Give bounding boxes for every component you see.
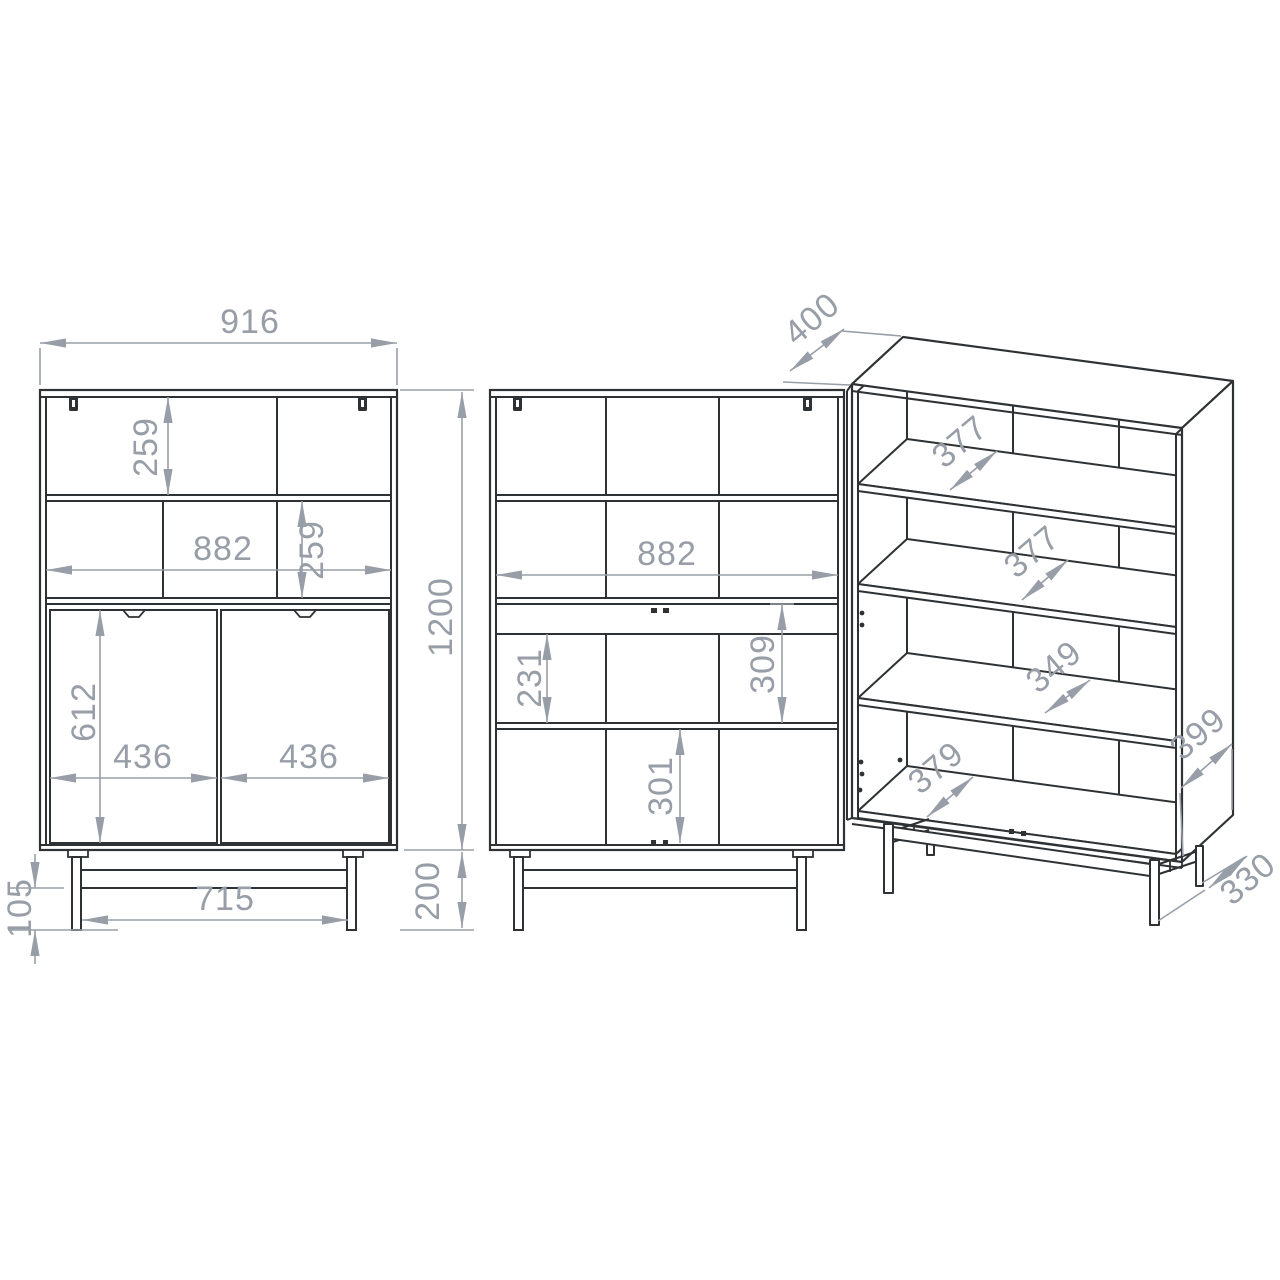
shelf-pin-hole-icon bbox=[860, 623, 865, 628]
dimension-label: 436 bbox=[113, 738, 173, 776]
leg-mount-plate bbox=[793, 850, 813, 857]
right-door bbox=[221, 610, 389, 843]
dimension-label: 259 bbox=[127, 417, 165, 477]
leg-mount-plate bbox=[68, 850, 88, 857]
technical-drawing-page: 9162598822596124364361057151200200882231… bbox=[0, 0, 1280, 1280]
dimension-label: 882 bbox=[637, 535, 697, 573]
dimension-label: 436 bbox=[279, 738, 339, 776]
metal-leg-back-right bbox=[1196, 846, 1203, 886]
fitting-mark bbox=[651, 840, 656, 844]
metal-leg-front-left bbox=[884, 824, 893, 893]
metal-leg bbox=[347, 857, 356, 930]
hinge-slot bbox=[516, 400, 519, 407]
metal-leg bbox=[72, 857, 81, 930]
leg-mount-plate bbox=[343, 850, 363, 857]
fitting-mark bbox=[651, 608, 657, 613]
hinge-slot bbox=[72, 400, 75, 407]
hinge-bracket-icon bbox=[513, 397, 522, 411]
dimension-label: 612 bbox=[65, 682, 103, 742]
dimension-label: 231 bbox=[511, 648, 549, 708]
shelf-pin-hole-icon bbox=[898, 758, 903, 763]
shelf-pin-hole-icon bbox=[858, 788, 863, 793]
metal-leg-front-right bbox=[1150, 860, 1159, 925]
dimension-label: 105 bbox=[1, 878, 39, 938]
dimension-label: 715 bbox=[195, 880, 255, 918]
leg-mount-plate bbox=[510, 850, 530, 857]
dimension-label: 309 bbox=[744, 634, 782, 694]
hinge-slot bbox=[806, 400, 809, 407]
shelf-pin-hole-icon bbox=[860, 611, 865, 616]
metal-leg bbox=[514, 857, 523, 930]
fitting-mark bbox=[1009, 829, 1014, 834]
hinge-bracket-icon bbox=[69, 397, 78, 411]
dimension-label: 882 bbox=[193, 530, 253, 568]
shelf-pin-hole-icon bbox=[860, 772, 865, 777]
hinge-bracket-icon bbox=[358, 397, 367, 411]
drawing-canvas: 9162598822596124364361057151200200882231… bbox=[0, 0, 1280, 1280]
fitting-mark bbox=[1021, 831, 1026, 836]
dimension-label: 259 bbox=[293, 520, 331, 580]
hinge-bracket-icon bbox=[803, 397, 812, 411]
dimension-label: 301 bbox=[642, 756, 680, 816]
hinge-slot bbox=[361, 400, 364, 407]
right-side-face bbox=[1182, 381, 1233, 862]
fitting-mark bbox=[663, 840, 668, 844]
dimension-label: 1200 bbox=[422, 577, 460, 657]
metal-leg bbox=[797, 857, 806, 930]
dimension-label: 200 bbox=[409, 861, 447, 921]
shelf-pin-hole-icon bbox=[859, 760, 864, 765]
fitting-mark bbox=[663, 608, 669, 613]
dimension-label: 916 bbox=[220, 303, 280, 341]
